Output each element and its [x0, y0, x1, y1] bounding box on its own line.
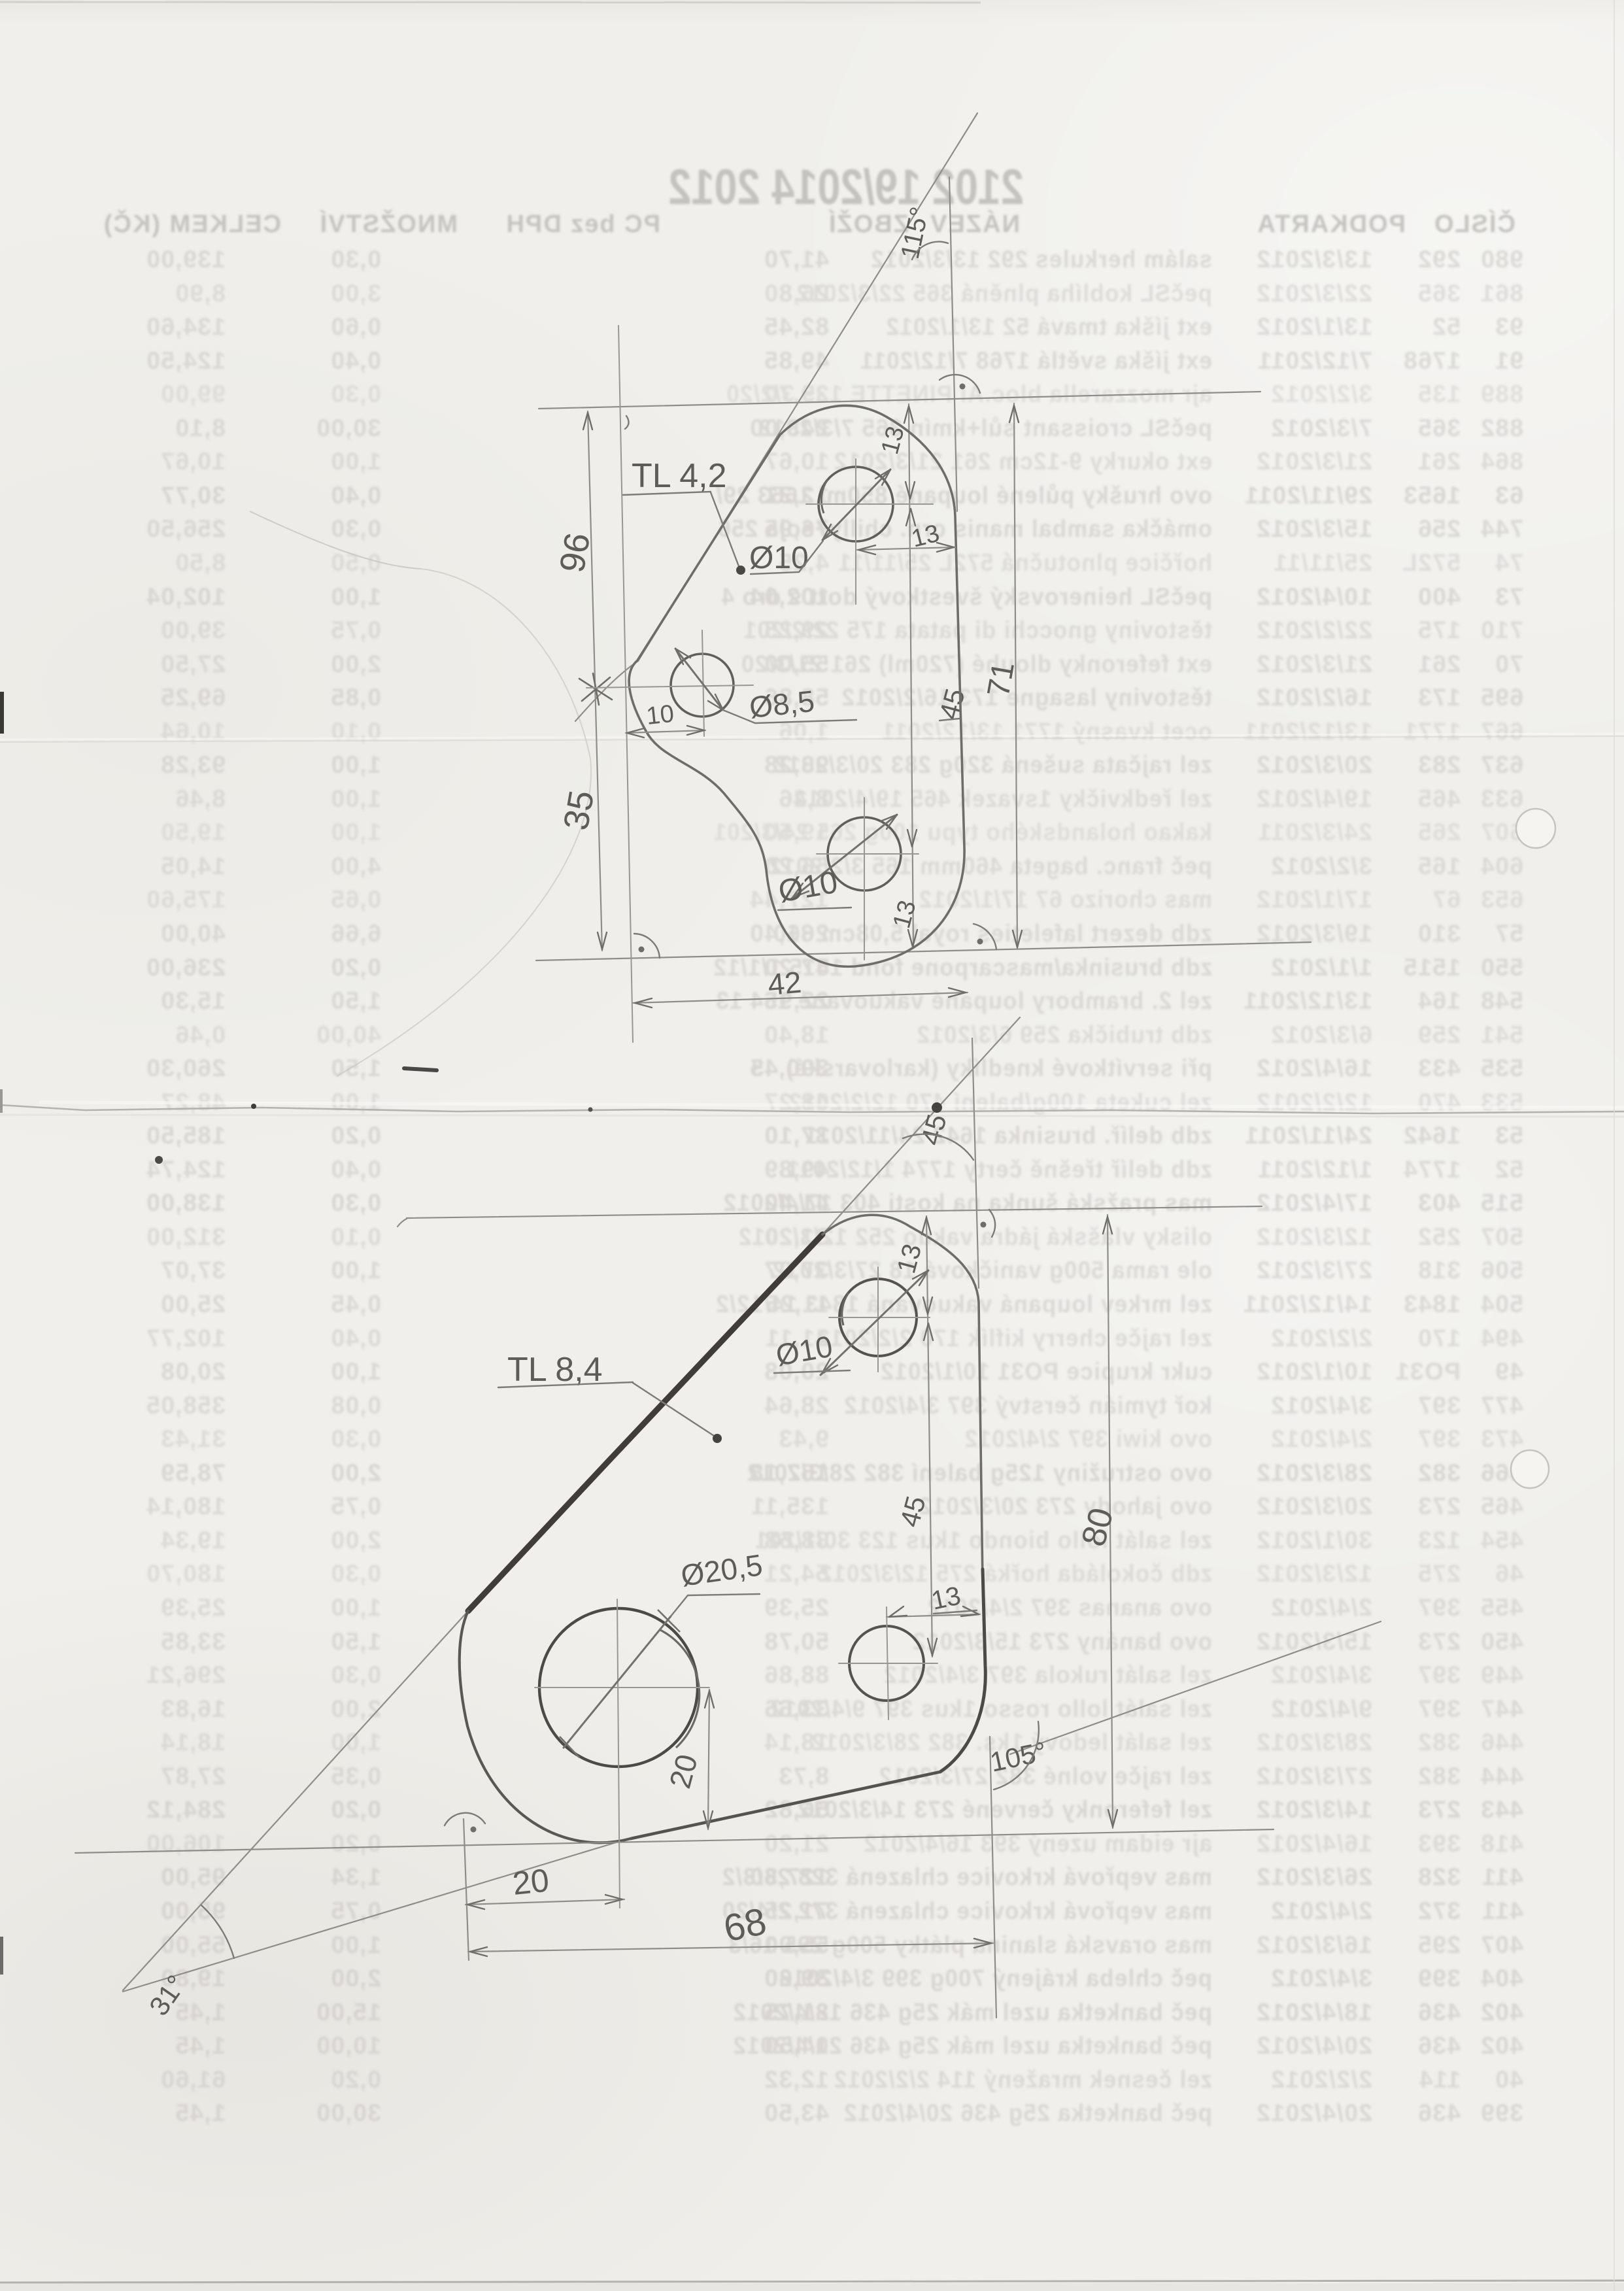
svg-text:45: 45	[894, 1493, 931, 1530]
svg-text:20: 20	[662, 1751, 703, 1792]
svg-text:96: 96	[552, 530, 598, 575]
svg-text:TL 4,2: TL 4,2	[632, 457, 727, 495]
svg-text:105°: 105°	[987, 1736, 1049, 1778]
svg-text:Ø10: Ø10	[776, 865, 841, 909]
svg-text:20: 20	[511, 1861, 550, 1902]
svg-text:TL 8,4: TL 8,4	[507, 1351, 603, 1389]
svg-text:35: 35	[556, 787, 602, 833]
svg-text:10: 10	[645, 700, 675, 730]
svg-text:Ø20,5: Ø20,5	[679, 1548, 764, 1593]
svg-text:Ø8,5: Ø8,5	[748, 684, 817, 724]
svg-text:80: 80	[1075, 1504, 1121, 1550]
svg-text:45: 45	[933, 685, 970, 722]
svg-text:31°: 31°	[143, 1969, 192, 2021]
svg-text:68: 68	[720, 1900, 770, 1950]
svg-text:13: 13	[888, 898, 922, 932]
svg-text:71: 71	[981, 659, 1021, 700]
svg-text:13: 13	[929, 1582, 964, 1616]
svg-text:42: 42	[766, 965, 803, 1002]
svg-text:13: 13	[892, 1241, 927, 1276]
